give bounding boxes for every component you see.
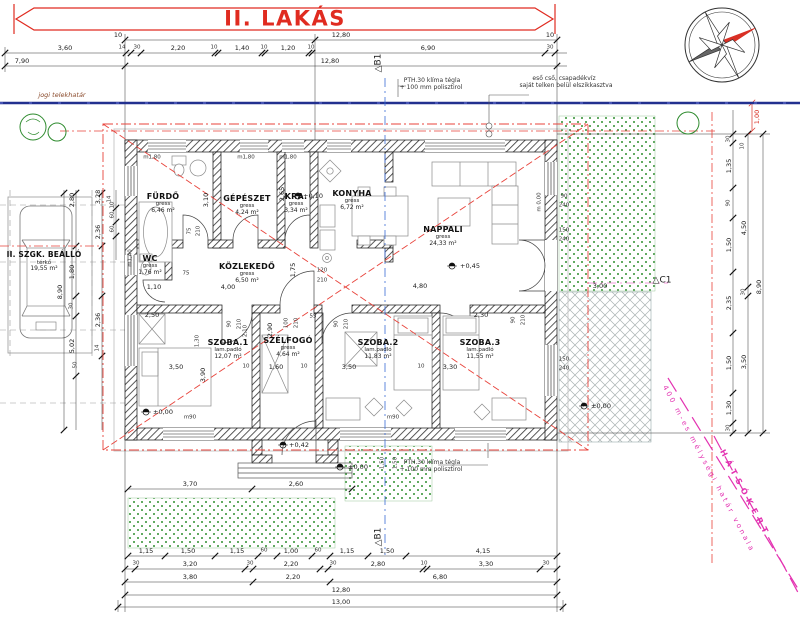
dim-label: 4,80 [413,283,427,290]
dim-label: 14 [95,345,101,352]
dim-label: 60 [110,226,116,233]
dim-label: 2,36 [95,313,102,327]
dim-label: 2,10 [243,325,249,337]
dim-label: 2,35 [726,296,733,310]
parking-car [8,197,92,353]
room-label-wc: WC gress 1,76 m² [138,254,162,276]
page-title: II. LAKÁS [224,9,346,30]
room-label-parking: II. SZGK. BEÁLLÓ térkő 19,55 m² [7,251,82,273]
dim-label: 30 [726,136,732,143]
level-label: ±0,00 [348,464,368,471]
level-label: ±0,00 [591,403,611,410]
dim-label: 3,20 [183,561,197,568]
dim-label: 2,20 [171,45,185,52]
dim-label: 75 [183,271,190,277]
parapet-label: m 0,00 [537,192,543,211]
opening-size: 210 [317,278,328,284]
dim-label: 10 [114,32,122,39]
porch-dim [125,486,355,492]
dim-label: 3,30 [443,364,457,371]
dim-label: 30 [247,561,254,567]
room-label-kozlekedo: KÖZLEKEDŐ gress 6,50 m² [219,262,275,284]
dim-label: 1,40 [235,45,249,52]
dim-label: 1,50 [726,238,733,252]
dim-label: 7,90 [15,58,29,65]
plot-boundary-label: jogi telekhatár [38,92,85,99]
rainwater-note: saját telken belül elszikkasztva [520,83,613,89]
dim-label: 10 [211,45,218,51]
dim-label: 30 [133,561,140,567]
dim-label: 1,50 [380,548,394,555]
door-width-label: m90 [184,415,196,421]
section-marker-b1: △B1 [375,528,384,547]
dim-label: 10 [308,45,315,51]
dim-label: 1,35 [726,159,733,173]
room-label-szoba1: SZOBA.1 lam.padló 12,07 m² [208,338,249,360]
dim-label: 6,80 [433,574,447,581]
dim-label: 6,90 [421,45,435,52]
level-label: +0,42 [289,442,309,449]
room-label-konyha: KONYHA gress 6,72 m² [332,189,371,211]
dim-label: 3,10 [203,193,210,207]
door-size: 90 [334,321,340,328]
dim-label: 2,50 [145,312,159,319]
dim-label: 30 [547,45,554,51]
dim-label: 1,50 [181,548,195,555]
dim-label: 10 [740,143,746,150]
dim-label: 60 [261,548,268,554]
dim-label: 30 [330,561,337,567]
room-label-furdo: FÜRDŐ gress 6,46 m² [147,192,180,214]
dim-label: 3,90 [200,368,207,382]
dim-label: 2,80 [371,561,385,568]
dim-label: 10 [421,561,428,567]
dim-label: 60 [110,212,116,219]
dim-label: 1,50 [380,457,386,469]
dim-label: 1,75 [290,263,297,277]
dim-label: 2,20 [286,574,300,581]
entrance-steps [238,463,352,478]
depth-limit-lines [668,378,800,600]
dim-label: 3,28 [95,190,102,204]
dim-label: 1,60 [269,364,283,371]
dim-label: 4,50 [741,221,748,235]
dim-label: 3,50 [342,364,356,371]
door-size: 90 [511,317,517,324]
dim-label: 1,30 [726,401,733,415]
dim-label: 3,70 [183,481,197,488]
room-label-szoba2: SZOBA.2 lam.padló 11,83 m² [358,338,399,360]
door-size: 100 [284,318,290,329]
door-size: 210 [521,315,527,326]
dim-label: 60 [315,548,322,554]
door-width-label: m90 [387,415,399,421]
dim-label: 10 [301,364,308,370]
door-size: 210 [237,319,243,330]
parapet-label: m1,80 [279,155,297,161]
dim-label: 5,02 [69,339,76,353]
dim-label: 13,00 [332,599,351,606]
dim-label: 12,80 [321,58,340,65]
section-marker-c1: △C1 [653,277,672,286]
dim-label: 3,60 [58,45,72,52]
room-label-nappali: NAPPALI gress 24,33 m² [423,225,463,247]
dim-label: 8,90 [756,280,763,294]
door-size: 90 [227,321,233,328]
room-label-kamra: KRA. gress 3,34 m² [284,192,308,214]
dim-label: 50 [73,362,79,369]
dim-label: 4,00 [221,284,235,291]
window-size: 240 [559,237,570,243]
setback-dim-label: 1,00 [754,110,761,124]
parapet-label: m1,80 [237,155,255,161]
plan-drawing [0,0,800,625]
window-size: 240 [559,366,570,372]
dim-label: 30 [543,561,550,567]
dim-label: 10 [546,32,554,39]
dim-label: 10 [418,364,425,370]
dim-label: 90 [726,200,732,207]
door-size: 210 [196,226,202,237]
dim-label: 14 [119,45,126,51]
floor-plan-page: II. LAKÁS 10 12,80 10 3,60 14 30 2,20 10… [0,0,800,625]
dim-label: 3,50 [169,364,183,371]
compass-rose [672,0,772,95]
terrace-lattice [559,292,651,442]
dim-label: 2,20 [284,561,298,568]
room-label-szelfogo: SZÉLFOGÓ gress 4,64 m² [263,336,312,358]
dim-label: 2,80 [69,193,76,207]
dim-label: 1,15 [230,548,244,555]
dim-label: 1,10 [147,284,161,291]
dim-label: 8,90 [57,285,64,299]
door-size: 55 [310,314,317,320]
dim-label: 1,30 [195,335,201,347]
dim-label: 1,20 [281,45,295,52]
dim-label: 12,80 [332,32,351,39]
dim-label: 1,00 [284,548,298,555]
insulation-note: + 100 mm polisztirol [400,467,463,473]
window-size: 150 [559,357,570,363]
dim-label: 30 [69,303,75,310]
dim-label: 30 [726,425,732,432]
dim-label: 2,36 [95,225,102,239]
dim-label: 3,30 [479,561,493,568]
dim-label: 3,80 [183,574,197,581]
door-size: 210 [294,318,300,329]
dim-label: 3,00 [593,283,607,290]
room-label-gepeszet: GÉPÉSZET gress 4,24 m² [223,194,270,216]
dim-label: 2,60 [289,481,303,488]
level-label: +0,45 [460,263,480,270]
parapet-label: m1,80 [143,155,161,161]
dim-label: 12,80 [332,587,351,594]
dim-label: 1,50 [393,457,399,469]
dim-label: 1,50 [726,356,733,370]
dim-label: 4,15 [476,548,490,555]
window-size: 240 [559,203,570,209]
window-size: 90 [561,194,568,200]
window-size: 150 [559,228,570,234]
insulation-note: + 100 mm polisztirol [400,85,463,91]
door-size: 210 [344,319,350,330]
dim-label: 10 [261,45,268,51]
dim-label: 2,30 [474,312,488,319]
dim-label: 10 [110,202,116,209]
dim-label: 1,15 [139,548,153,555]
section-marker-b1: △B1 [375,54,384,73]
level-label: ±0,00 [153,409,173,416]
room-label-szoba3: SZOBA.3 lam.padló 11,55 m² [460,338,501,360]
dim-label: 1,15 [340,548,354,555]
opening-size: 120 [317,268,328,274]
dim-label: 30 [741,289,747,296]
dim-label: 10 [243,364,250,370]
parapet-label: m1,40 [128,249,134,267]
dim-label: 3,50 [741,355,748,369]
door-size: 75 [187,228,193,235]
dim-label: 30 [134,45,141,51]
